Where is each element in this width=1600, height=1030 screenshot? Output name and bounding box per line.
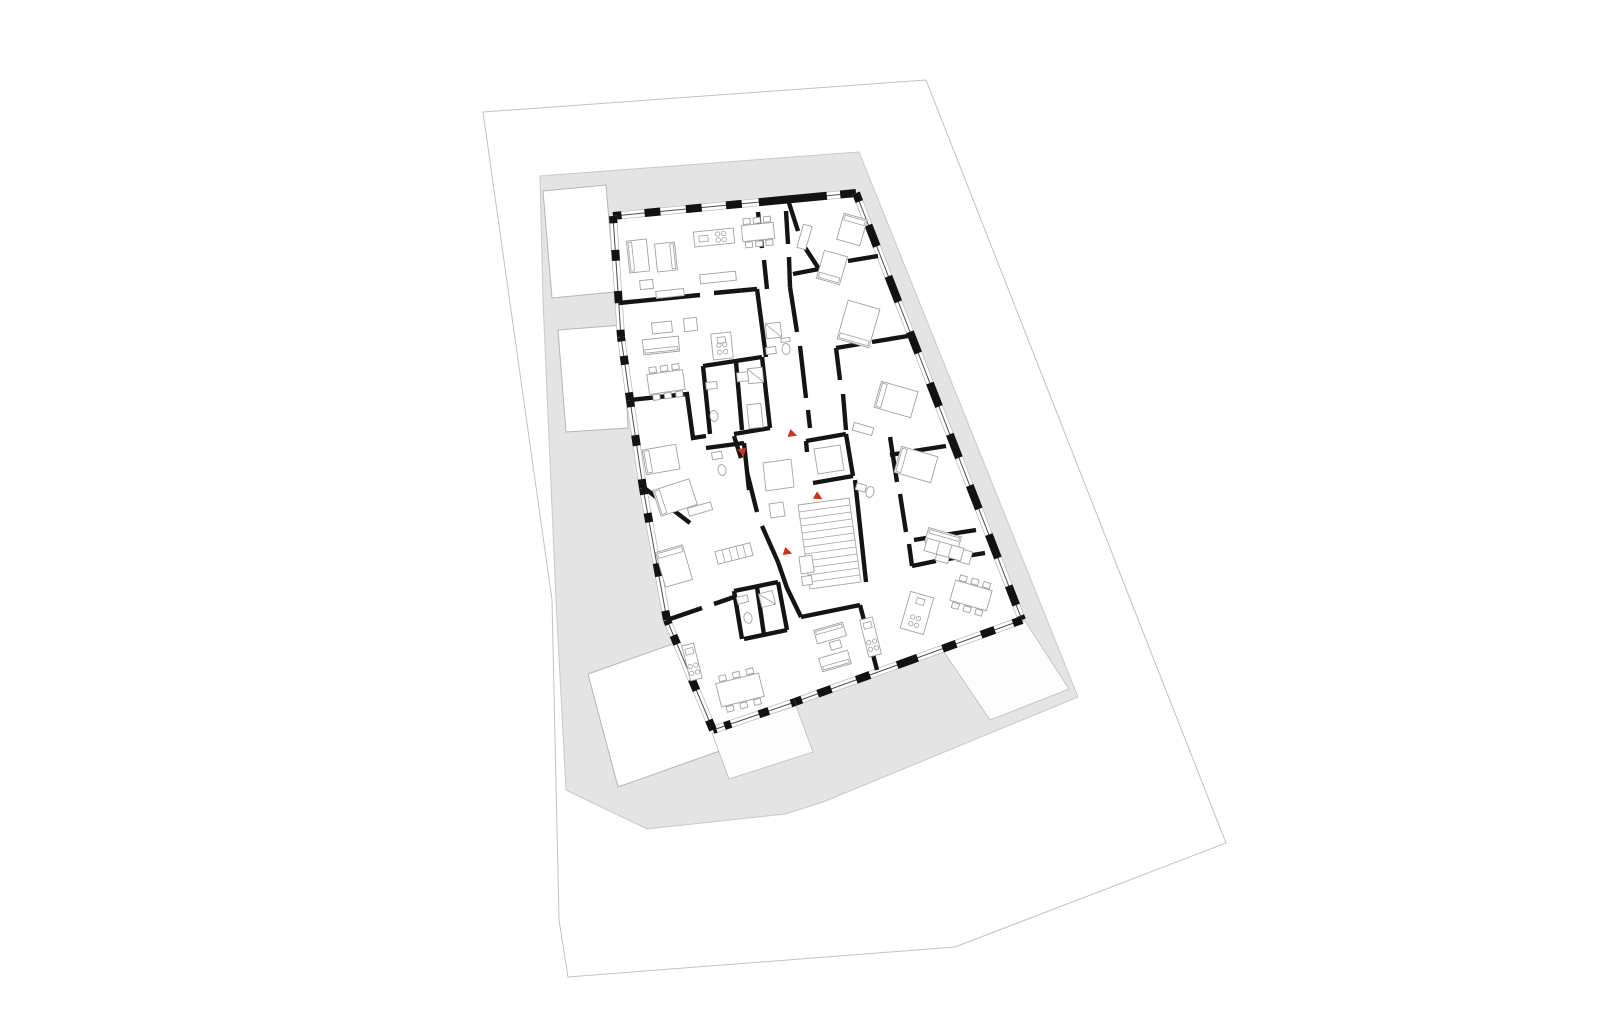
chair (732, 671, 740, 678)
furniture-rect (781, 338, 790, 343)
furniture-sofa (655, 242, 678, 272)
chair (763, 216, 771, 222)
facade-wall-segment (648, 513, 650, 522)
facade-wall-segment (1013, 620, 1022, 623)
furniture-rect (747, 367, 763, 383)
furniture-rect (766, 346, 777, 354)
facade-wall-segment (613, 215, 622, 216)
chair (718, 675, 726, 682)
chair (664, 392, 672, 398)
interior-wall (843, 394, 846, 430)
facade-wall-segment (624, 356, 625, 365)
chair (660, 365, 668, 371)
facade-wall-segment (759, 711, 769, 714)
facade-wall-segment (692, 679, 697, 690)
site-plan-page (0, 0, 1600, 1030)
furniture-rect (765, 322, 781, 338)
interior-wall (808, 410, 810, 428)
neighbor-block-mid-left (558, 325, 628, 432)
chair (740, 702, 748, 709)
chair (743, 218, 751, 224)
floor-plan-drawing (0, 0, 1600, 1030)
chair (753, 698, 761, 705)
facade-wall-segment (686, 208, 702, 209)
chair (746, 668, 754, 675)
chair (753, 217, 761, 223)
facade-wall-segment (795, 700, 802, 702)
interior-wall (789, 257, 790, 287)
chair (653, 394, 661, 400)
interior-wall (909, 544, 912, 566)
furniture-rect (759, 591, 776, 608)
furniture-kitchen (711, 332, 734, 360)
chair (745, 242, 753, 248)
chair (755, 241, 763, 247)
furniture-sofa (626, 239, 649, 273)
furniture-rect (640, 279, 654, 289)
facade-wall-segment (642, 479, 643, 488)
furniture-rect (711, 451, 722, 460)
interior-wall (764, 260, 767, 289)
facade-wall-segment (615, 250, 616, 261)
facade-wall-segment (856, 193, 859, 202)
furniture-sofa (642, 336, 679, 355)
facade-wall-segment (621, 337, 622, 341)
furniture-bed (642, 444, 680, 475)
neighbor-block-top-left (543, 185, 615, 298)
furniture-rect (683, 317, 697, 331)
facade-wall-segment (657, 563, 659, 576)
facade-wall-segment (709, 720, 713, 730)
chair (649, 367, 657, 373)
facade-wall-segment (726, 204, 742, 205)
facade-wall-segment (791, 702, 795, 703)
chair (766, 240, 774, 246)
furniture-rect (706, 381, 718, 389)
interior-wall (786, 211, 788, 244)
interior-wall (806, 441, 807, 452)
facade-wall-segment (618, 291, 619, 303)
furniture-rect (651, 321, 672, 334)
furniture-rect (799, 555, 814, 574)
facade-wall-segment (856, 675, 870, 680)
facade-wall-segment (724, 724, 731, 726)
chair (675, 391, 683, 397)
chair (672, 364, 680, 370)
furniture-rect (747, 403, 763, 428)
facade-wall-segment (635, 435, 637, 446)
facade-wall-segment (981, 630, 995, 635)
furniture-table (741, 216, 776, 248)
chair (726, 705, 734, 712)
facade-wall-segment (673, 635, 677, 644)
facade-wall-segment (629, 392, 630, 400)
facade-wall-segment (943, 644, 957, 649)
facade-wall-segment (818, 689, 832, 694)
furniture-rect (801, 575, 812, 585)
facade-wall-segment (645, 212, 661, 213)
